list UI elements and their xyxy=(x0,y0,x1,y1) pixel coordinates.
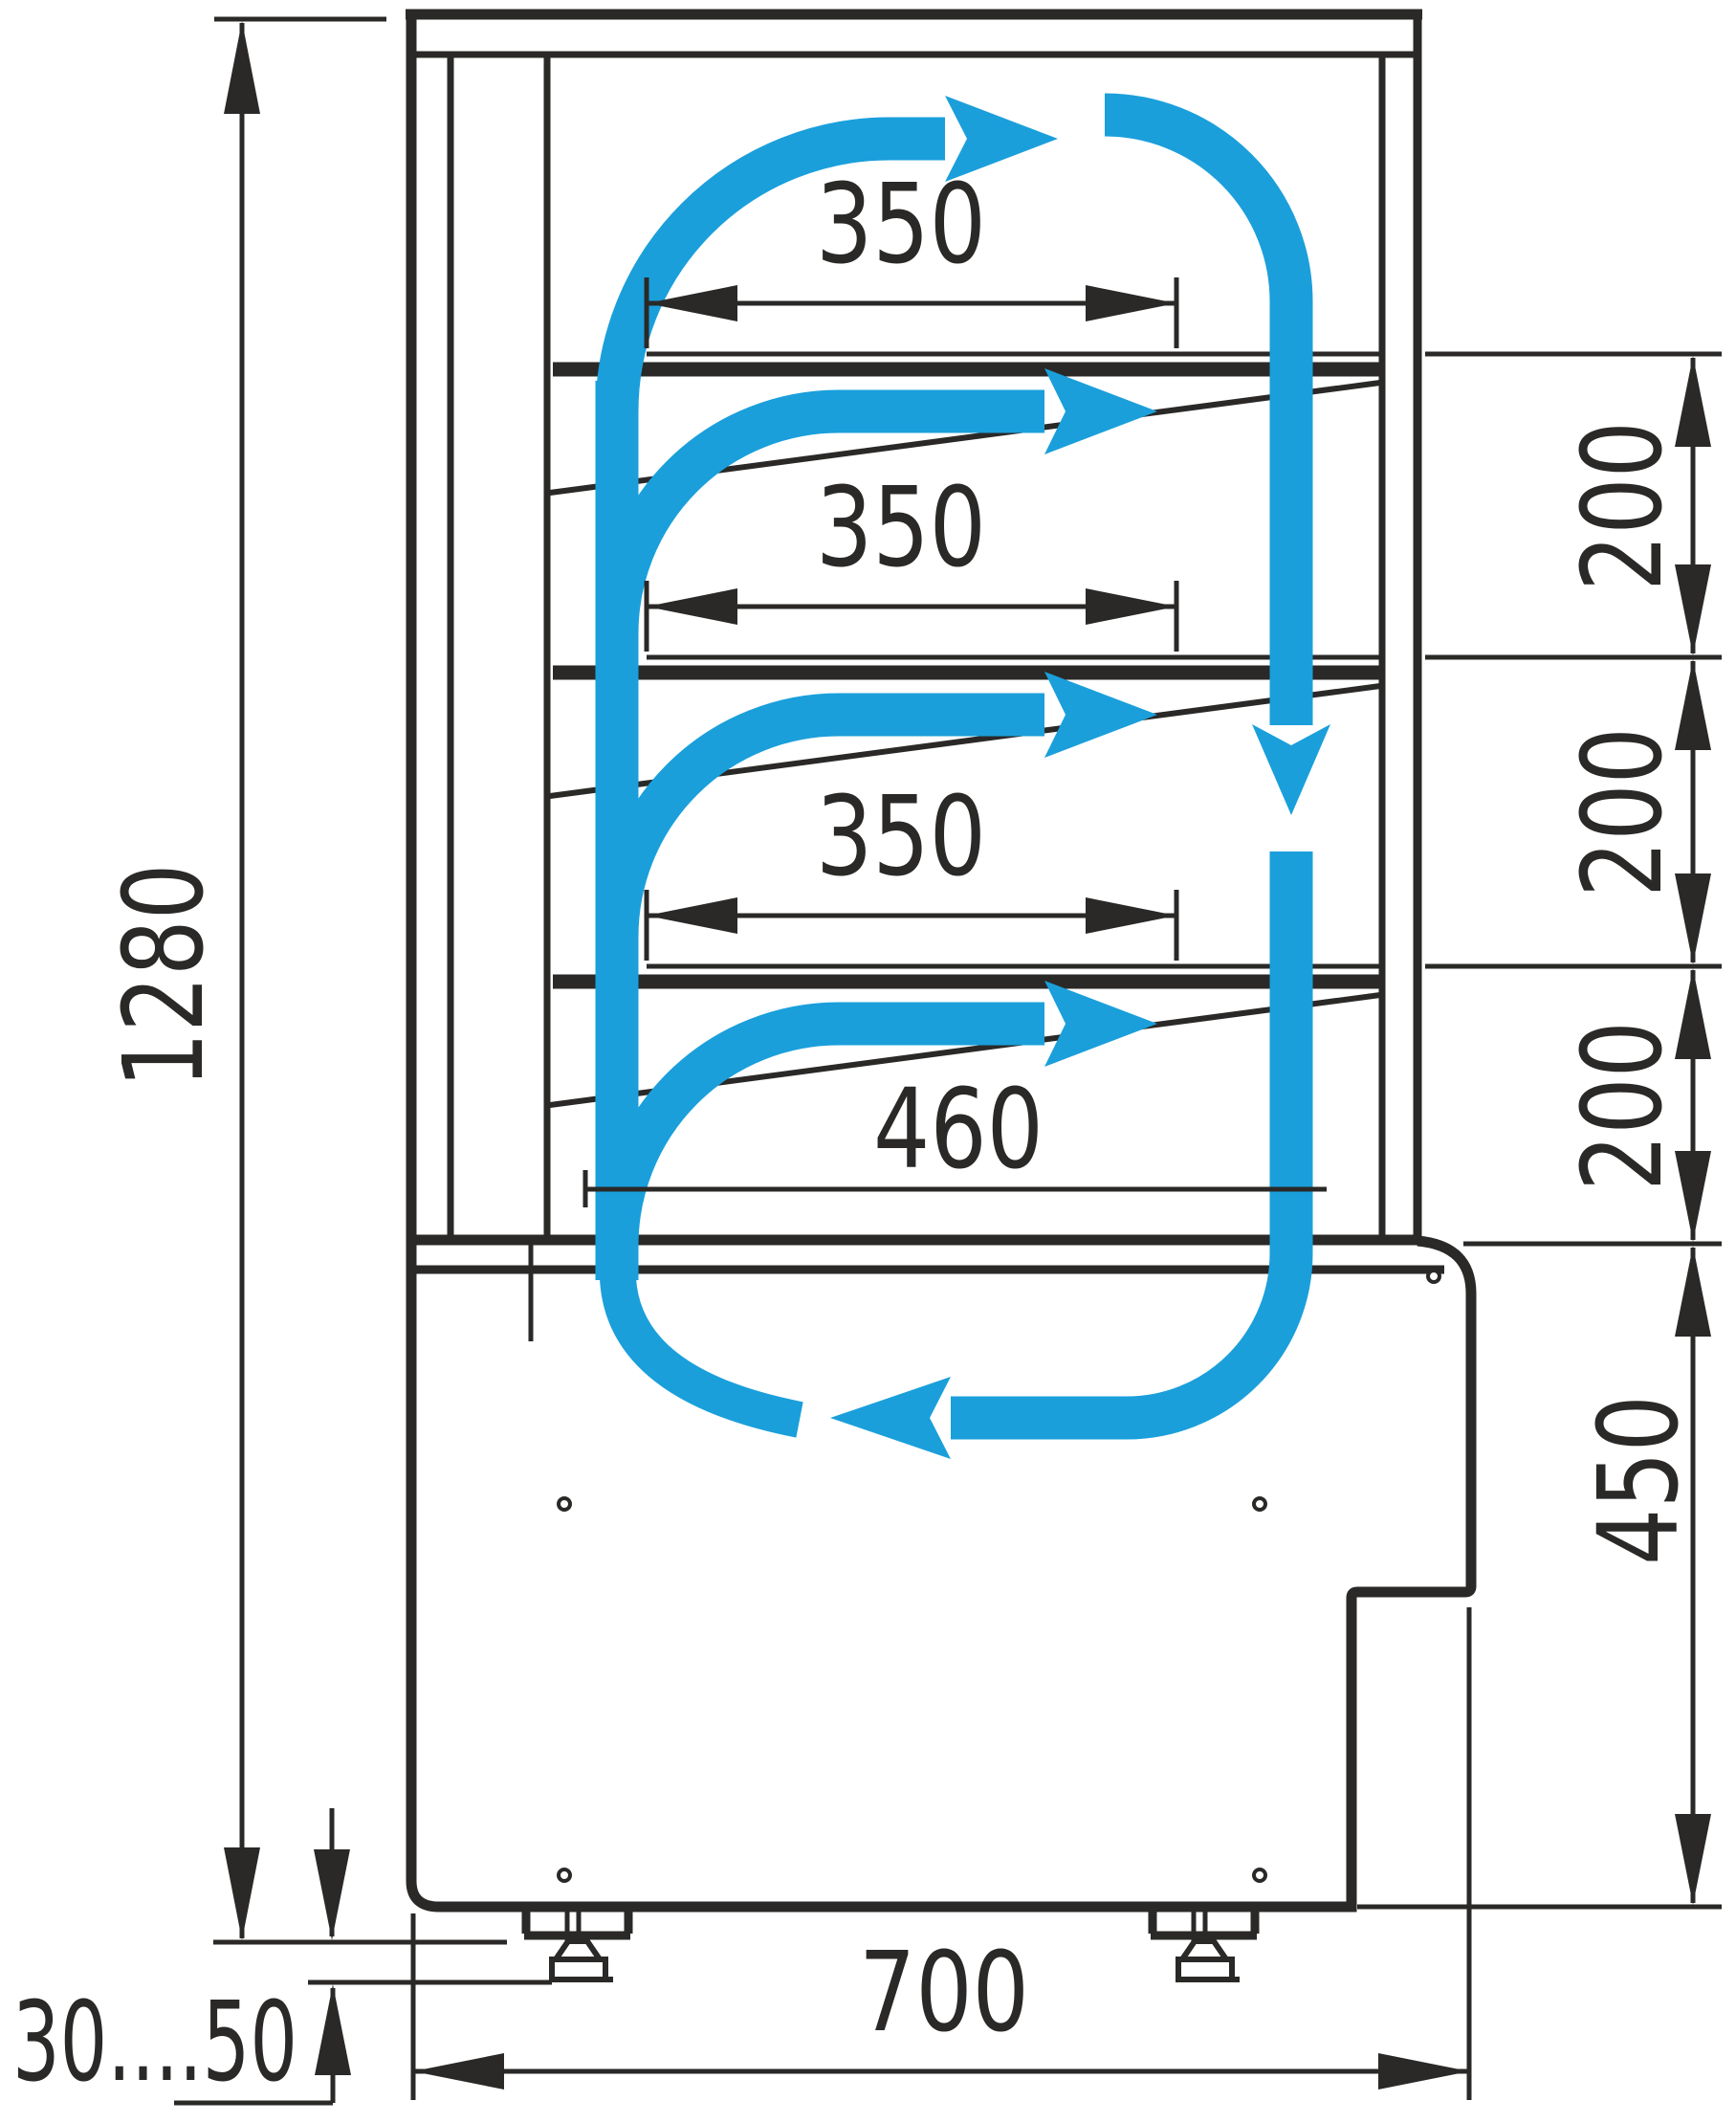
dim-gap3-label: 200 xyxy=(1559,1021,1687,1191)
dim-foot-adjustment-label: 30....50 xyxy=(12,1979,297,2107)
dim-gap2-label: 200 xyxy=(1559,727,1687,897)
screw-hole xyxy=(1428,1271,1439,1282)
dim-depth-label: 700 xyxy=(859,1929,1029,2057)
screw-hole xyxy=(1254,1869,1265,1881)
dim-shelf2-width-label: 350 xyxy=(816,464,986,592)
drawing-page: 1280 350 350 350 460 xyxy=(0,0,1736,2123)
dim-base-height-label: 450 xyxy=(1575,1395,1703,1565)
screw-hole xyxy=(559,1869,570,1881)
dim-shelf1-width-label: 350 xyxy=(816,161,986,289)
dim-overall-height-label: 1280 xyxy=(100,864,229,1089)
screw-hole xyxy=(1254,1498,1265,1510)
dim-gap1-label: 200 xyxy=(1559,421,1687,591)
display-case-section-diagram: 1280 350 350 350 460 xyxy=(0,0,1736,2123)
dim-bottom-shelf-width-label: 460 xyxy=(873,1066,1044,1194)
dim-shelf3-width-label: 350 xyxy=(816,773,986,901)
screw-hole xyxy=(559,1498,570,1510)
